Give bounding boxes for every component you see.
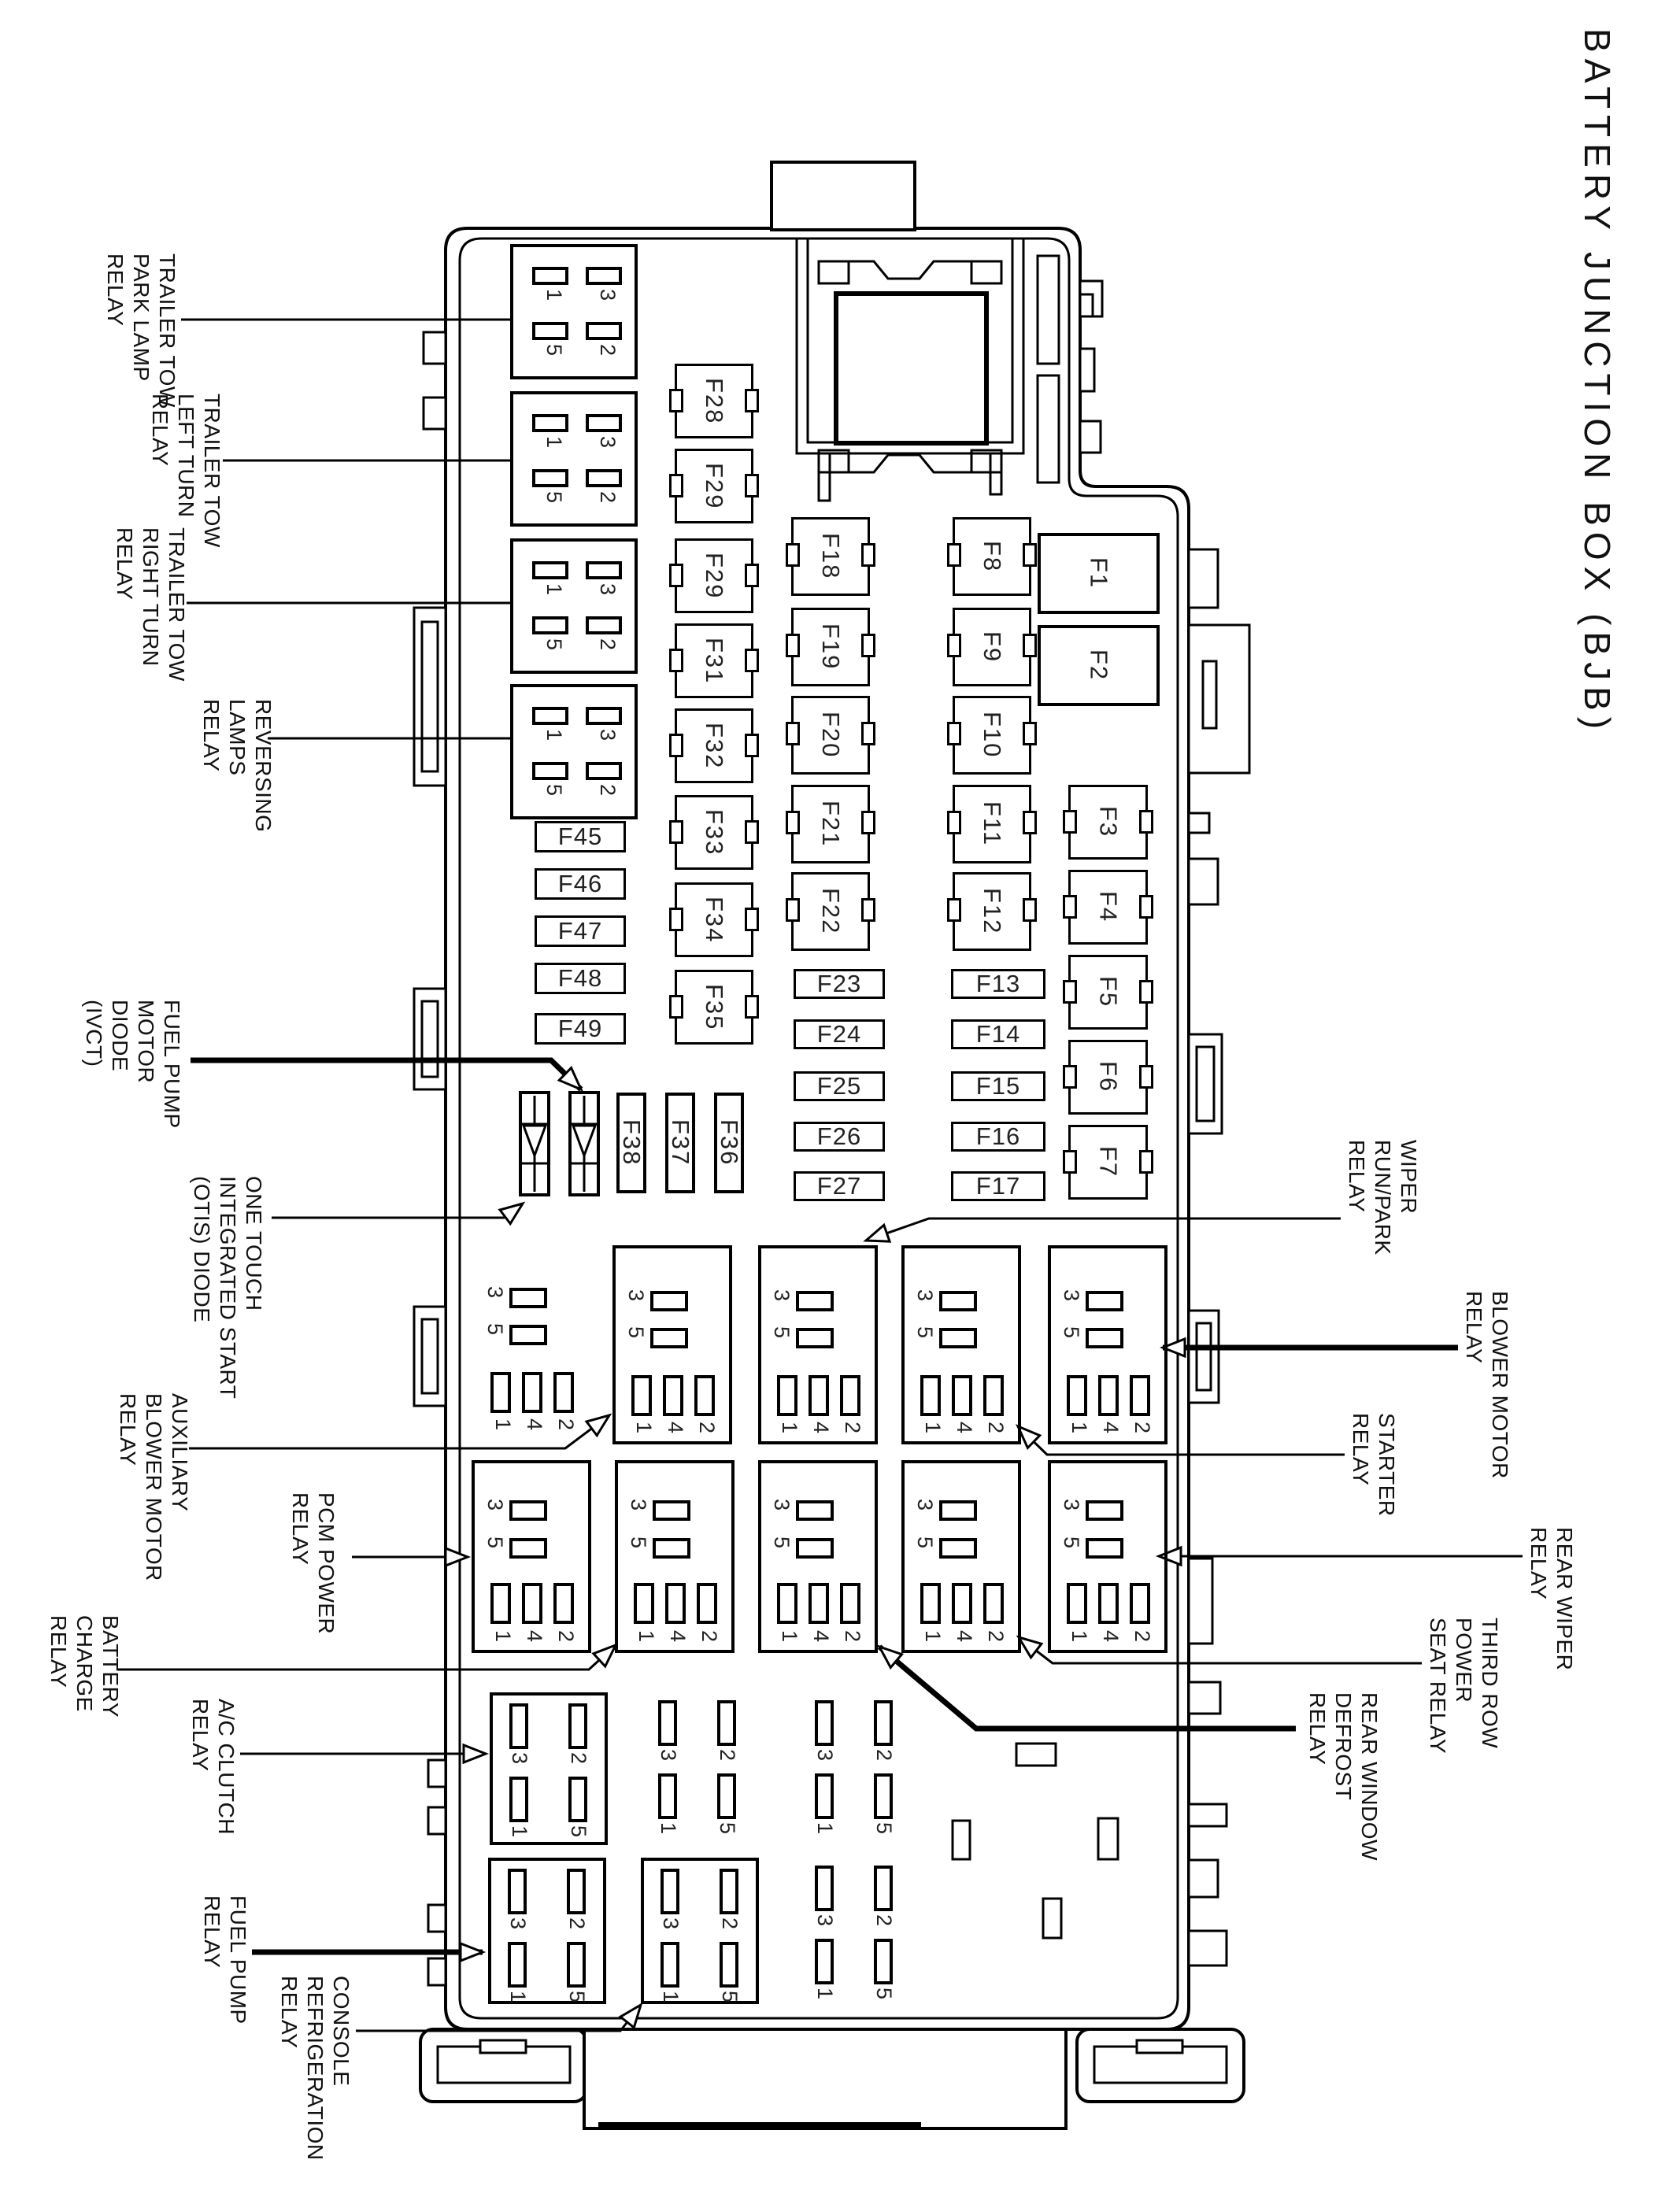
starter-relay: 35142	[901, 1245, 1021, 1444]
pin-5	[532, 469, 568, 487]
pin-num-3: 3	[597, 436, 618, 448]
pin-4	[952, 1583, 972, 1624]
pin-3	[508, 1869, 527, 1914]
pin-2	[983, 1583, 1004, 1624]
fuse-notch-left	[669, 734, 683, 757]
pin-num-1: 1	[779, 1630, 800, 1642]
label-console-refrigeration: CONSOLEREFRIGERATIONRELAY	[276, 1976, 354, 2161]
pin-5	[796, 1538, 834, 1559]
label-trailer-tow-right-turn: TRAILER TOWRIGHT TURNRELAY	[112, 527, 190, 682]
label-line: AUXILIARY	[167, 1393, 193, 1581]
pin-1	[815, 1773, 834, 1819]
label-line: RELAY	[187, 1699, 213, 1835]
pin-num-2: 2	[566, 1917, 587, 1929]
pin-num-2: 2	[842, 1630, 863, 1642]
label-line: FUEL PUMP	[159, 1000, 185, 1129]
fuse-label: F16	[976, 1122, 1020, 1151]
pin-2	[697, 1583, 717, 1624]
reversing-lamps-relay: 1352	[510, 684, 638, 819]
fuse-notch-left	[947, 811, 961, 834]
pin-1	[631, 1375, 652, 1416]
fuse-label: F32	[700, 723, 728, 769]
label-line: BATTERY	[98, 1615, 124, 1718]
fuse-label: F19	[816, 623, 845, 670]
pin-num-1: 1	[922, 1422, 943, 1433]
fuse-notch-left	[786, 898, 800, 922]
pin-num-1: 1	[543, 583, 564, 595]
label-line: FUEL PUMP	[225, 1895, 251, 2025]
fuse-notch-left	[669, 474, 683, 497]
fuse-F21: F21	[791, 785, 870, 863]
fuse-notch-left	[1063, 1065, 1077, 1089]
fuse-label: F20	[816, 712, 845, 758]
pin-5	[532, 762, 568, 780]
label-line: RELAY	[199, 1895, 225, 2025]
pin-num-5: 5	[771, 1537, 792, 1548]
fuse-label: F48	[558, 964, 602, 993]
fuel-pump-relay: 3215	[488, 1858, 606, 2004]
pin-num-1: 1	[1068, 1422, 1090, 1433]
fuse-F11: F11	[953, 785, 1031, 863]
pin-num-1: 1	[635, 1630, 657, 1642]
pin-2	[694, 1375, 715, 1416]
fuse-F29: F29	[675, 449, 753, 523]
pin-2	[586, 762, 622, 780]
pin-num-4: 4	[524, 1418, 545, 1430]
fuse-F5: F5	[1068, 955, 1148, 1030]
pin-3	[586, 561, 622, 579]
label-line: THIRD ROW	[1477, 1618, 1503, 1754]
label-line: ONE TOUCH	[241, 1176, 267, 1399]
fuse-notch-right	[745, 389, 759, 412]
pin-5	[509, 1538, 547, 1559]
label-line: RELAY	[1526, 1527, 1552, 1670]
pin-3	[1086, 1500, 1123, 1521]
fuse-F1: F1	[1038, 533, 1160, 614]
pin-4	[952, 1375, 972, 1416]
fuse-F48: F48	[535, 963, 626, 994]
fuse-label: F18	[816, 533, 845, 579]
pin-num-3: 3	[771, 1499, 792, 1511]
fuse-notch-right	[861, 634, 875, 657]
fuse-notch-right	[861, 811, 875, 834]
pin-num-4: 4	[1100, 1422, 1121, 1433]
pin-2	[1130, 1375, 1150, 1416]
fuse-notch-right	[745, 908, 759, 931]
pin-4	[665, 1583, 686, 1624]
pin-num-3: 3	[597, 289, 618, 301]
pin-1	[1067, 1375, 1087, 1416]
pin-5	[568, 1777, 587, 1822]
fuse-label: F15	[976, 1072, 1020, 1100]
pin-3	[815, 1700, 834, 1746]
label-line: A/C CLUTCH	[213, 1699, 239, 1835]
fuse-label: F13	[976, 970, 1020, 998]
fuse-F29: F29	[675, 538, 753, 613]
pin-num-4: 4	[667, 1630, 688, 1642]
fuse-label: F7	[1094, 1146, 1123, 1178]
pin-num-5: 5	[1060, 1326, 1082, 1338]
ac-clutch-relay: 3215	[490, 1692, 608, 1845]
fuse-F16: F16	[951, 1122, 1045, 1152]
fuse-F36: F36	[714, 1093, 744, 1193]
pin-4	[809, 1375, 829, 1416]
label-line: RIGHT TURN	[138, 527, 164, 682]
pin-num-5: 5	[625, 1326, 646, 1338]
fuse-label: F2	[1085, 649, 1113, 681]
pin-num-5: 5	[543, 344, 564, 356]
pin-3	[586, 707, 622, 725]
pin-num-3: 3	[771, 1289, 792, 1301]
pin-5	[796, 1328, 834, 1348]
fuse-notch-left	[947, 543, 961, 567]
fuse-label: F29	[700, 553, 728, 599]
pin-num-5: 5	[484, 1323, 505, 1335]
fuse-notch-right	[861, 722, 875, 745]
pin-1	[658, 1773, 677, 1819]
pin-4	[1098, 1583, 1119, 1624]
label-pcm-power: PCM POWERRELAY	[287, 1492, 339, 1634]
pin-1	[532, 267, 568, 285]
label-battery-charge: BATTERYCHARGERELAY	[46, 1615, 124, 1718]
fuse-notch-right	[1023, 898, 1037, 922]
trailer-tow-park-lamp-relay: 1352	[510, 244, 638, 379]
pin-num-3: 3	[509, 1752, 530, 1764]
label-trailer-tow-park-lamp: TRAILER TOWPARK LAMPRELAY	[102, 253, 180, 408]
pin-1	[490, 1372, 511, 1413]
pin-num-3: 3	[657, 1749, 679, 1761]
fuse-F3: F3	[1068, 785, 1148, 860]
pin-1	[634, 1583, 654, 1624]
fuse-notch-right	[1023, 722, 1037, 745]
fuse-label: F3	[1094, 806, 1123, 838]
pin-2	[983, 1375, 1004, 1416]
label-line: (OTIS) DIODE	[189, 1176, 215, 1399]
fuse-notch-left	[1063, 810, 1077, 834]
console-refrigeration-relay: 3215	[641, 1858, 759, 2004]
label-line: RELAY	[1348, 1413, 1374, 1517]
fuse-notch-left	[786, 543, 800, 567]
fuse-F35: F35	[675, 970, 753, 1045]
pin-num-2: 2	[873, 1749, 894, 1761]
fuse-label: F9	[978, 631, 1006, 663]
pin-num-3: 3	[484, 1499, 505, 1511]
pin-5	[720, 1942, 738, 1988]
pin-num-1: 1	[660, 1991, 681, 2002]
pin-5	[567, 1942, 586, 1988]
fuse-F18: F18	[791, 517, 870, 596]
pin-1	[920, 1375, 941, 1416]
label-line: MOTOR	[133, 1000, 159, 1129]
fuse-notch-right	[745, 564, 759, 587]
pin-4	[663, 1375, 683, 1416]
pin-3	[509, 1288, 547, 1308]
label-line: RELAY	[112, 527, 138, 682]
label-line: RUN/PARK	[1370, 1140, 1396, 1255]
pin-num-3: 3	[627, 1499, 649, 1511]
label-line: DIODE	[107, 1000, 133, 1129]
fuse-label: F46	[558, 870, 602, 898]
fuse-F23: F23	[794, 969, 885, 999]
fuse-label: F4	[1094, 891, 1123, 923]
wiper-run-park-relay: 35142	[758, 1245, 878, 1444]
fuse-label: F49	[558, 1015, 602, 1043]
fuse-label: F14	[976, 1020, 1020, 1048]
fuse-notch-left	[669, 389, 683, 412]
pin-num-5: 5	[914, 1326, 935, 1338]
pin-1	[1067, 1583, 1087, 1624]
fuse-label: F8	[978, 541, 1006, 572]
pin-2	[840, 1375, 860, 1416]
pin-2	[720, 1869, 738, 1914]
third-row-power-seat-relay: 35142	[901, 1460, 1021, 1653]
pin-num-3: 3	[914, 1499, 935, 1511]
pin-2	[586, 469, 622, 487]
label-line: RELAY	[276, 1976, 302, 2161]
label-line: REAR WINDOW	[1356, 1692, 1382, 1861]
fuse-notch-left	[947, 898, 961, 922]
label-auxiliary-blower-motor: AUXILIARYBLOWER MOTORRELAY	[115, 1393, 193, 1581]
fuse-notch-right	[745, 734, 759, 757]
fuse-notch-left	[947, 722, 961, 745]
pin-num-3: 3	[597, 583, 618, 595]
pin-num-1: 1	[814, 1822, 835, 1834]
label-line: RELAY	[287, 1492, 313, 1634]
fuse-F6: F6	[1068, 1040, 1148, 1115]
pin-num-4: 4	[810, 1422, 831, 1433]
pin-2	[553, 1372, 574, 1413]
pin-3	[939, 1500, 977, 1521]
pin-3	[939, 1291, 977, 1311]
pin-3	[509, 1703, 528, 1749]
pin-3	[815, 1866, 834, 1911]
diagram-title: BATTERY JUNCTION BOX (BJB)	[1576, 28, 1619, 735]
fuse-label: F23	[817, 970, 861, 998]
pin-num-3: 3	[814, 1749, 835, 1761]
pin-num-2: 2	[985, 1630, 1006, 1642]
pin-num-4: 4	[664, 1422, 686, 1433]
fuse-label: F25	[817, 1072, 861, 1100]
pin-num-5: 5	[873, 1988, 894, 1999]
fuse-F38: F38	[616, 1093, 646, 1193]
fuse-label: F37	[666, 1119, 694, 1166]
fuse-F25: F25	[794, 1071, 885, 1101]
pin-num-4: 4	[953, 1630, 975, 1642]
pin-5	[532, 616, 568, 634]
fuse-label: F38	[617, 1119, 646, 1166]
fuse-notch-left	[1063, 1150, 1077, 1174]
label-line: REVERSING	[250, 699, 276, 832]
fuse-F46: F46	[535, 868, 626, 900]
fuse-notch-right	[745, 820, 759, 844]
fuse-notch-right	[861, 898, 875, 922]
pin-num-5: 5	[716, 1822, 738, 1834]
blower-motor-relay: 35142	[1048, 1245, 1167, 1444]
fuse-F14: F14	[951, 1019, 1045, 1049]
fuse-notch-right	[745, 995, 759, 1019]
pin-3	[796, 1291, 834, 1311]
pin-3	[796, 1500, 834, 1521]
label-line: RELAY	[198, 699, 224, 832]
pin-num-3: 3	[814, 1914, 835, 1926]
pin-num-5: 5	[719, 1991, 740, 2002]
pin-num-3: 3	[660, 1917, 681, 1929]
fuse-label: F35	[700, 984, 728, 1030]
fuse-notch-left	[1063, 980, 1077, 1004]
pin-2	[586, 616, 622, 634]
pin-num-5: 5	[627, 1537, 649, 1548]
label-wiper-run-park: WIPERRUN/PARKRELAY	[1344, 1140, 1422, 1255]
pin-group-a3: 3215	[798, 1692, 916, 1845]
fuse-F12: F12	[953, 872, 1031, 951]
pin-1	[508, 1942, 527, 1988]
pin-num-2: 2	[597, 638, 618, 650]
pcm-power-relay: 35142	[472, 1460, 591, 1653]
fuse-label: F28	[700, 378, 728, 424]
pin-num-2: 2	[985, 1422, 1006, 1433]
pin-3	[653, 1500, 690, 1521]
relay-group-1: 35142	[475, 1245, 594, 1444]
fuse-F19: F19	[791, 608, 870, 686]
pin-5	[939, 1328, 977, 1348]
fuse-label: F45	[558, 823, 602, 851]
fuse-label: F29	[700, 463, 728, 509]
fuse-notch-right	[1023, 811, 1037, 834]
label-line: (IVCT)	[81, 1000, 107, 1129]
pin-num-5: 5	[914, 1537, 935, 1548]
pin-num-1: 1	[922, 1630, 943, 1642]
fuse-label: F5	[1094, 976, 1123, 1008]
fuse-F8: F8	[953, 517, 1031, 596]
fuse-notch-right	[745, 474, 759, 497]
auxiliary-blower-motor-relay: 35142	[612, 1245, 732, 1444]
pin-3	[1086, 1291, 1123, 1311]
pin-5	[874, 1939, 893, 1984]
pin-1	[920, 1583, 941, 1624]
fuse-F7: F7	[1068, 1125, 1148, 1200]
pin-num-5: 5	[568, 1825, 589, 1837]
pin-5	[509, 1325, 547, 1345]
fuse-label: F34	[700, 897, 728, 943]
pin-num-3: 3	[1060, 1289, 1082, 1301]
fuse-F9: F9	[953, 608, 1031, 686]
label-line: TRAILER TOW	[199, 394, 225, 548]
pin-1	[815, 1939, 834, 1984]
pin-num-2: 2	[716, 1749, 738, 1761]
pin-5	[532, 322, 568, 340]
pin-num-2: 2	[597, 344, 618, 356]
fuse-notch-left	[1063, 895, 1077, 919]
pin-num-1: 1	[633, 1422, 654, 1433]
fuse-label: F47	[558, 917, 602, 945]
pin-num-5: 5	[873, 1822, 894, 1834]
label-line: REAR WIPER	[1552, 1527, 1578, 1670]
pin-num-4: 4	[524, 1630, 545, 1642]
pin-4	[1098, 1375, 1119, 1416]
label-line: RELAY	[1304, 1692, 1330, 1861]
fuse-F24: F24	[794, 1019, 885, 1049]
pin-5	[1086, 1328, 1123, 1348]
label-line: TRAILER TOW	[154, 253, 180, 408]
fuse-F2: F2	[1038, 625, 1160, 706]
pin-1	[777, 1375, 797, 1416]
label-line: CONSOLE	[328, 1976, 354, 2161]
fuse-F47: F47	[535, 915, 626, 947]
fuse-label: F33	[700, 809, 728, 856]
fuse-notch-right	[1139, 810, 1153, 834]
fuse-notch-left	[669, 995, 683, 1019]
pin-num-2: 2	[1131, 1630, 1153, 1642]
fuse-F4: F4	[1068, 870, 1148, 945]
label-reversing-lamps: REVERSINGLAMPSRELAY	[198, 699, 276, 832]
pin-1	[509, 1777, 528, 1822]
fuse-label: F11	[978, 801, 1006, 846]
fuse-F34: F34	[675, 882, 753, 957]
pin-1	[661, 1942, 679, 1988]
label-line: RELAY	[115, 1393, 141, 1581]
pin-5	[939, 1538, 977, 1559]
fuse-label: F31	[700, 638, 728, 684]
pin-num-3: 3	[507, 1917, 528, 1929]
fuse-notch-left	[947, 634, 961, 657]
pin-num-2: 2	[597, 491, 618, 503]
fuse-notch-right	[1139, 1065, 1153, 1089]
fuse-F10: F10	[953, 696, 1031, 775]
fuse-notch-right	[1023, 634, 1037, 657]
pin-1	[532, 707, 568, 725]
pin-num-5: 5	[484, 1537, 505, 1548]
rear-wiper-relay: 35142	[1048, 1460, 1167, 1653]
label-ac-clutch: A/C CLUTCHRELAY	[187, 1699, 239, 1835]
fuse-notch-left	[669, 649, 683, 672]
pin-num-3: 3	[484, 1286, 505, 1298]
fuse-F22: F22	[791, 872, 870, 951]
fuse-label: F24	[817, 1020, 861, 1048]
fuse-F32: F32	[675, 708, 753, 783]
pin-num-2: 2	[842, 1422, 863, 1433]
pin-5	[717, 1773, 736, 1819]
pin-num-2: 2	[555, 1418, 576, 1430]
pin-num-5: 5	[1060, 1537, 1082, 1548]
pin-num-2: 2	[568, 1752, 589, 1764]
label-line: POWER	[1451, 1618, 1477, 1754]
pin-2	[568, 1703, 587, 1749]
label-line: LAMPS	[224, 699, 250, 832]
fuse-F31: F31	[675, 623, 753, 698]
pin-num-3: 3	[1060, 1499, 1082, 1511]
pin-5	[874, 1773, 893, 1819]
pin-num-5: 5	[771, 1326, 792, 1338]
fuse-label: F26	[817, 1122, 861, 1151]
label-rear-wiper: REAR WIPERRELAY	[1526, 1527, 1578, 1670]
fuse-F26: F26	[794, 1122, 885, 1152]
pin-num-1: 1	[492, 1418, 513, 1430]
pin-2	[567, 1869, 586, 1914]
pin-num-2: 2	[1131, 1422, 1153, 1433]
pin-num-1: 1	[543, 436, 564, 448]
fuse-notch-right	[1139, 1150, 1153, 1174]
pin-1	[490, 1583, 511, 1624]
pin-num-2: 2	[873, 1914, 894, 1926]
label-line: PCM POWER	[313, 1492, 339, 1634]
fuse-label: F22	[816, 888, 845, 934]
pin-1	[777, 1583, 797, 1624]
pin-2	[1130, 1583, 1150, 1624]
pin-num-1: 1	[543, 289, 564, 301]
label-line: LEFT TURN	[173, 394, 199, 548]
pin-num-1: 1	[507, 1991, 528, 2002]
fuse-notch-right	[1139, 895, 1153, 919]
